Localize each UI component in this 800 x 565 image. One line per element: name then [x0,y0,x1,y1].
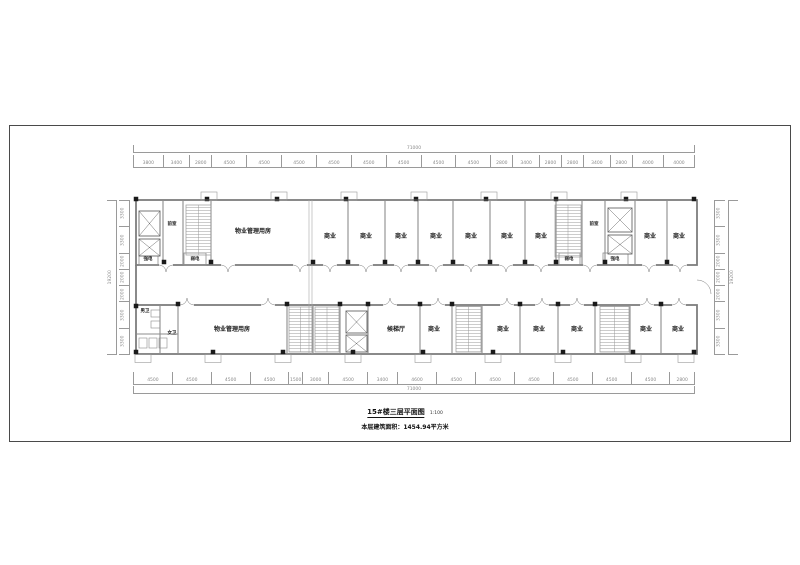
room-label-property-mgmt-bottom: 物业管理用房 [214,327,250,333]
dim-right-segments: 3300330020002000200033003300 [714,200,725,355]
title-block: 15#楼三层平面图 1:100 本层建筑面积：1454.94平方米 [361,399,448,431]
room-label-shop: 商业 [501,234,513,240]
dim-overall-height-left: 19200 [107,200,117,355]
room-label-strong-electric: 强电 [144,258,153,263]
room-label-shop: 商业 [428,327,440,333]
room-label-shop: 商业 [673,234,685,240]
room-label-vestibule-left: 前室 [168,223,177,228]
room-label-shop: 商业 [672,327,684,333]
room-label-shop: 商业 [360,234,372,240]
door-symbols [159,264,687,307]
room-label-strong-electric: 强电 [611,258,620,263]
dim-left-segments: 3300330020002000200033003300 [119,200,130,355]
room-label-mens-wc: 男卫 [141,310,150,315]
room-label-shop: 商业 [324,234,336,240]
dim-overall-width-bottom: 71000 [133,386,695,394]
room-label-shop: 商业 [571,327,583,333]
room-label-shop: 商业 [497,327,509,333]
room-label-shop: 商业 [644,234,656,240]
room-label-weak-electric: 弱电 [565,258,574,263]
room-label-elevator-hall: 候梯厅 [387,327,405,333]
room-label-shop: 商业 [395,234,407,240]
room-label-shop: 商业 [533,327,545,333]
dim-bottom-segments: 4500450045004500150030004500340046004500… [133,372,695,385]
room-label-weak-electric: 弱电 [191,258,200,263]
room-label-vestibule-right: 前室 [590,223,599,228]
dim-overall-width-top: 71000 [133,145,695,153]
drawing-area-note: 本层建筑面积：1454.94平方米 [361,422,448,431]
toilet-fixtures-icon [139,310,167,348]
drawing-scale: 1:100 [430,411,443,416]
room-label-shop: 商业 [465,234,477,240]
corridor-end-door-icon [697,280,711,294]
room-label-shop: 商业 [535,234,547,240]
drawing-title: 15#楼三层平面图 [367,408,425,418]
room-label-property-mgmt-top: 物业管理用房 [235,229,271,235]
room-label-womens-wc: 女卫 [168,332,177,337]
dim-overall-height-right: 19200 [728,200,738,355]
drawing-sheet: 前室 物业管理用房 商业 商业 商业 商业 商业 商业 商业 前室 商业 商业 … [0,0,800,565]
room-label-shop: 商业 [430,234,442,240]
dim-top-segments: 3800340028004500450045004500450045004500… [133,155,695,168]
room-label-shop: 商业 [640,327,652,333]
